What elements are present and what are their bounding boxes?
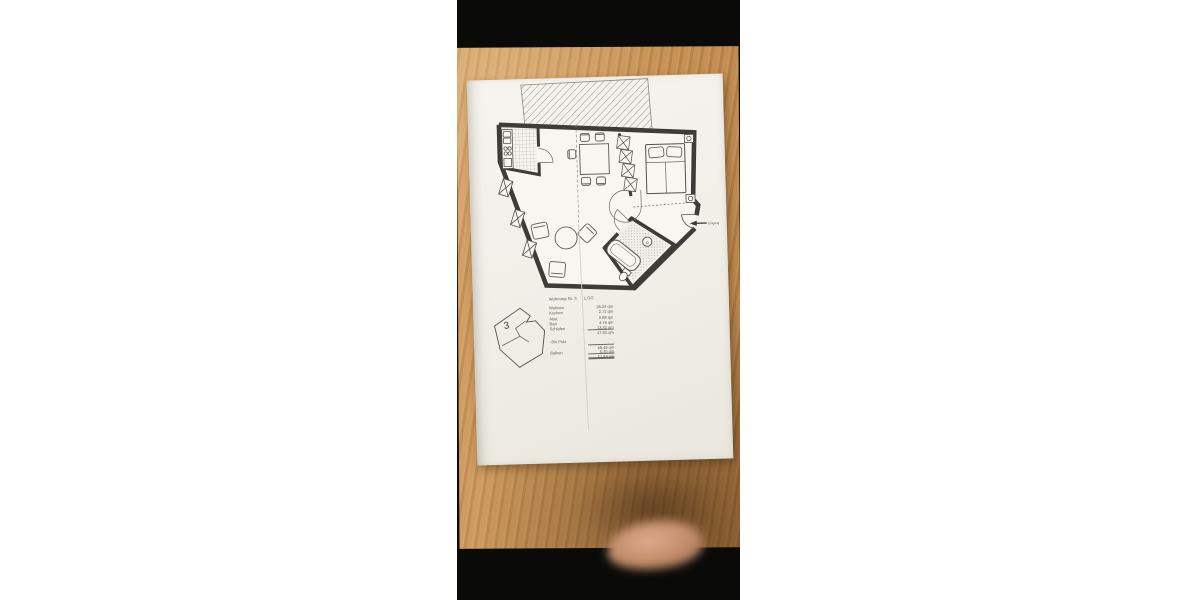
- entrance-label: Eingang: [708, 221, 719, 225]
- screenshot-canvas: Eingang 3 Wohnung Nr. 31.OG Wohnen: [0, 0, 1200, 600]
- key-plan: 3: [494, 308, 546, 368]
- key-plan-unit-number: 3: [503, 320, 511, 332]
- armchair: [549, 261, 566, 277]
- coffee-table: [555, 227, 578, 250]
- double-bed: [646, 144, 686, 194]
- floor-plan-drawing: Eingang 3: [467, 74, 734, 466]
- photo-of-floor-plan: Eingang 3 Wohnung Nr. 31.OG Wohnen: [457, 0, 740, 600]
- area-table: Wohnung Nr. 31.OG Wohnen26.24 qm Kochen2…: [549, 295, 615, 361]
- plan-title: Wohnung Nr. 31.OG: [549, 295, 613, 302]
- paper-sheet: Eingang 3 Wohnung Nr. 31.OG Wohnen: [467, 74, 734, 466]
- armchair: [531, 222, 550, 240]
- bathroom-sink: [643, 237, 652, 246]
- kitchen-counter: [502, 129, 514, 168]
